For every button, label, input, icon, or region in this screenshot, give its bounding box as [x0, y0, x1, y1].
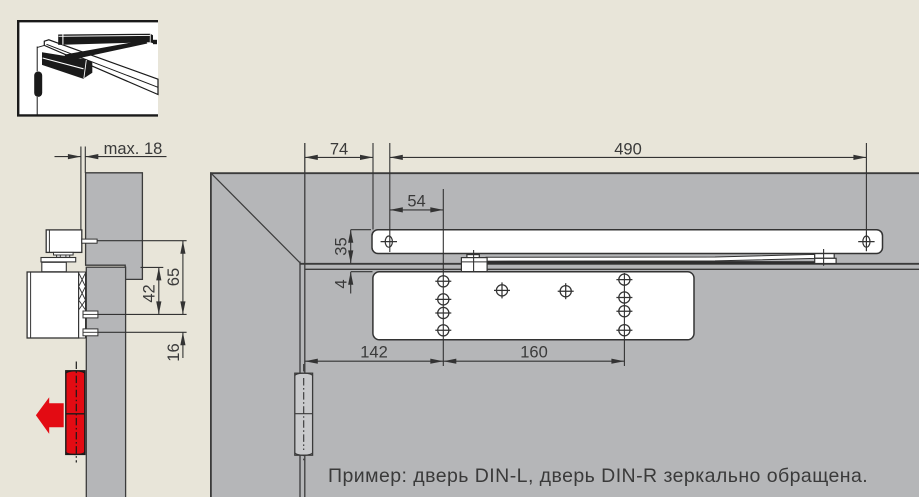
- svg-text:16: 16: [165, 343, 183, 361]
- svg-text:490: 490: [614, 140, 642, 158]
- svg-text:35: 35: [333, 237, 351, 255]
- svg-text:max. 18: max. 18: [104, 140, 163, 158]
- svg-text:160: 160: [520, 344, 548, 362]
- svg-text:54: 54: [407, 192, 425, 210]
- svg-text:65: 65: [165, 268, 183, 286]
- svg-text:74: 74: [330, 140, 348, 158]
- svg-text:4: 4: [333, 279, 351, 288]
- svg-text:42: 42: [141, 284, 159, 302]
- svg-text:142: 142: [360, 344, 388, 362]
- svg-text:Пример: дверь DIN-L, дверь DIN: Пример: дверь DIN-L, дверь DIN-R зеркаль…: [328, 465, 868, 487]
